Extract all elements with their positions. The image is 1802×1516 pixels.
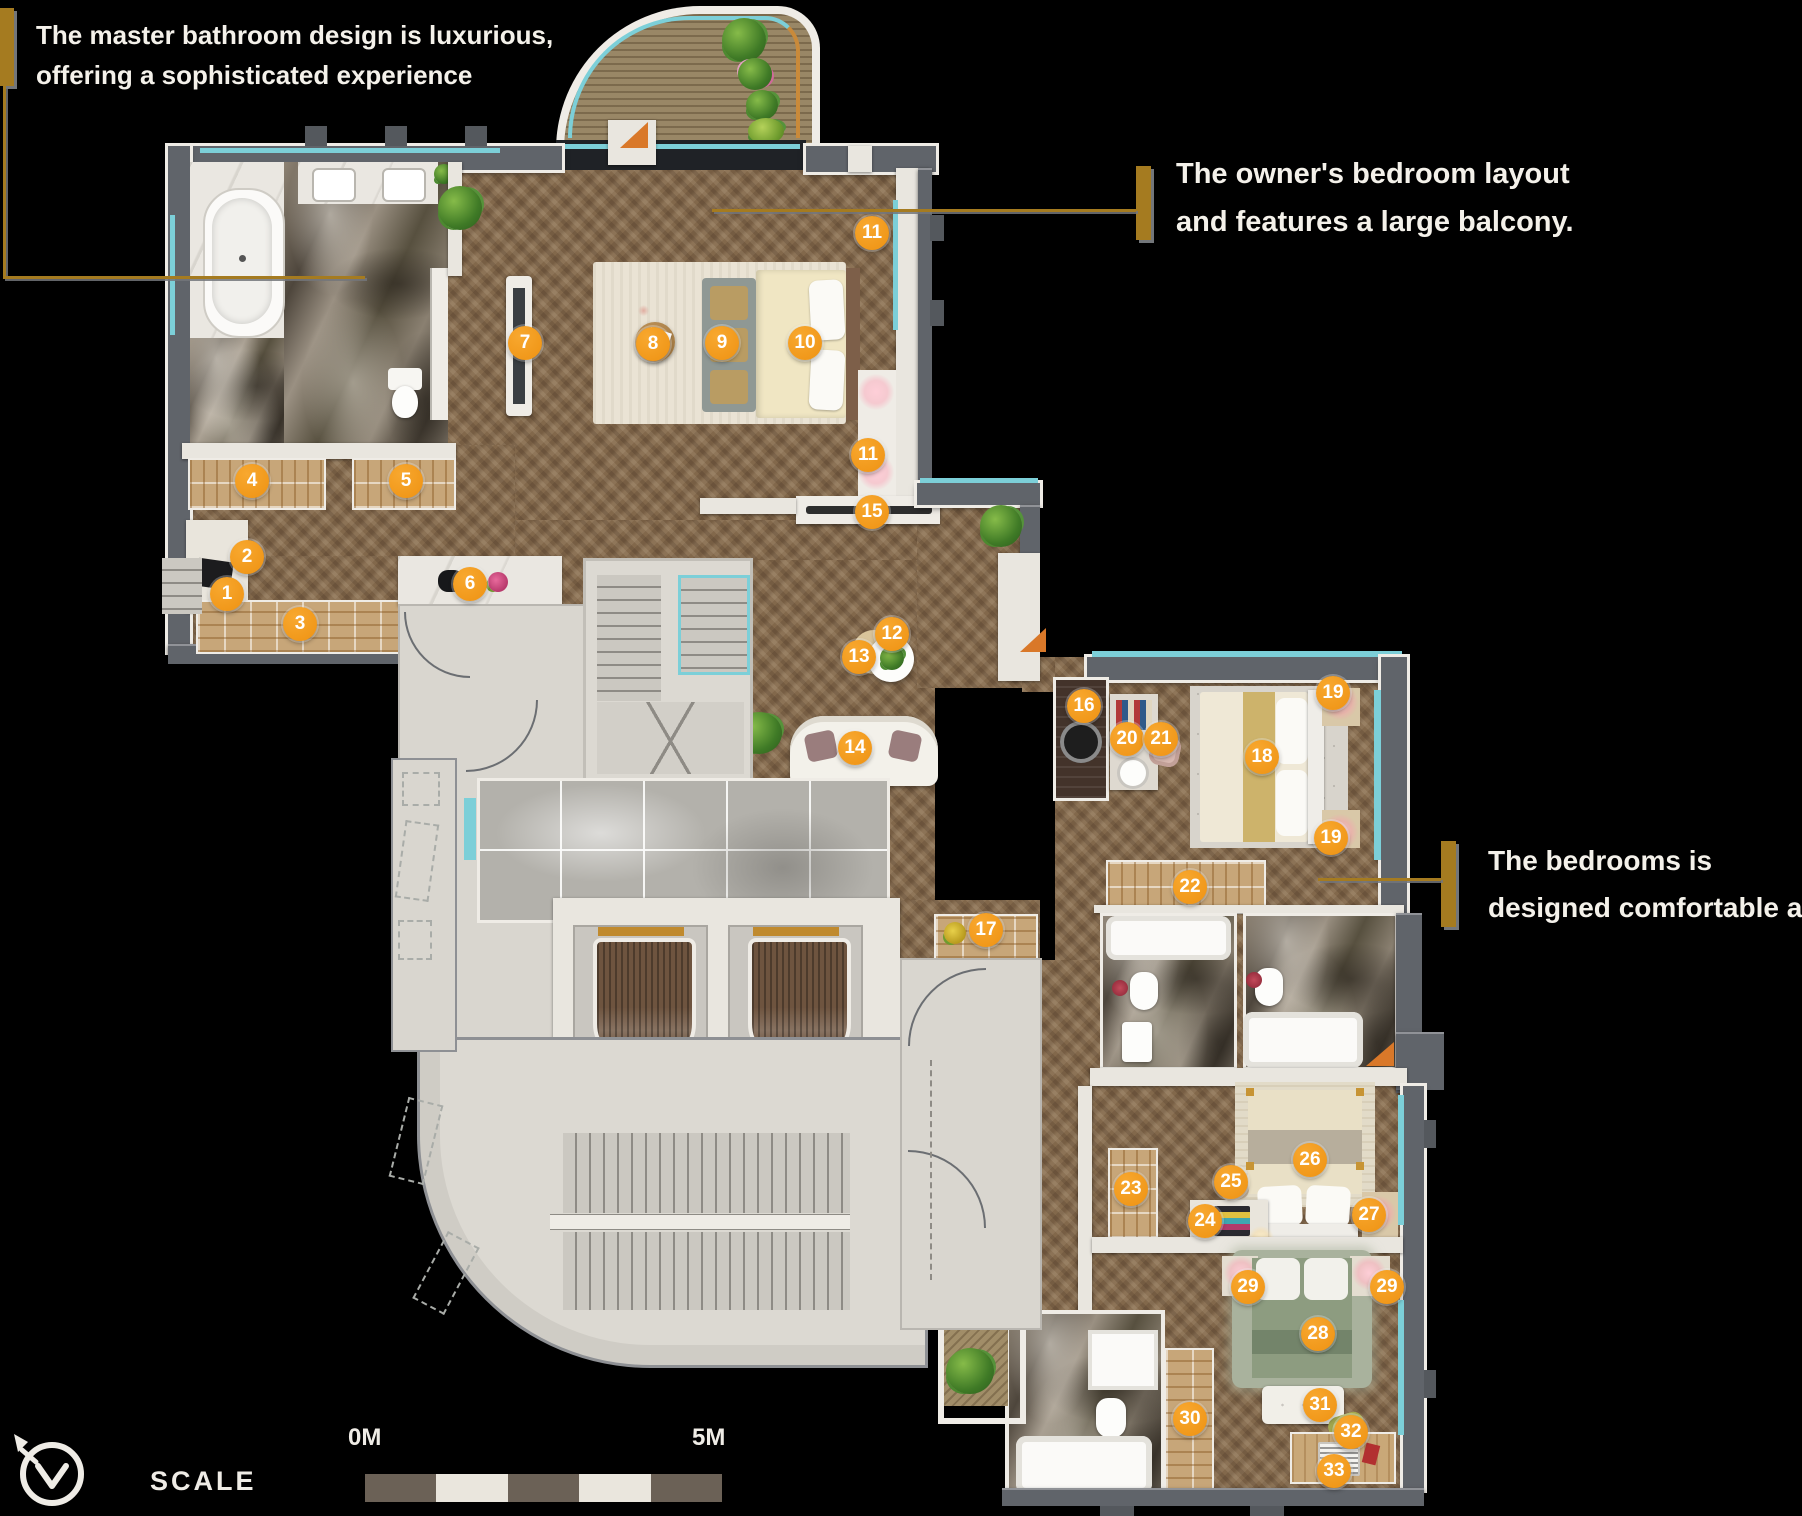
plan-marker-8: 8 [636,327,670,361]
plan-marker-32: 32 [1334,1415,1368,1449]
plan-marker-27: 27 [1352,1198,1386,1232]
plan-marker-22: 22 [1173,870,1207,904]
scale-label: SCALE [150,1466,257,1497]
annotation-top-right-line1: The owner's bedroom layout [1176,158,1570,191]
plan-marker-19: 19 [1314,821,1348,855]
annotation-top-right-line2: and features a large balcony. [1176,206,1574,239]
scale-segment-dark [651,1474,722,1502]
plan-marker-33: 33 [1317,1454,1351,1488]
plan-marker-2: 2 [230,540,264,574]
plan-marker-9: 9 [705,326,739,360]
plan-marker-30: 30 [1173,1402,1207,1436]
callout-line-top-left-v [3,86,6,277]
plan-marker-28: 28 [1301,1317,1335,1351]
plan-marker-14: 14 [838,731,872,765]
scale-end-label: 5M [692,1424,725,1452]
plan-marker-13: 13 [842,640,876,674]
scale-zero-label: 0M [348,1424,381,1452]
plan-marker-29: 29 [1231,1270,1265,1304]
north-arrow-icon [8,1408,92,1512]
plan-marker-25: 25 [1214,1165,1248,1199]
plan-marker-24: 24 [1188,1204,1222,1238]
plan-marker-19: 19 [1316,676,1350,710]
plan-marker-16: 16 [1067,689,1101,723]
plan-marker-5: 5 [389,464,423,498]
floor-plan-sheet: The master bathroom design is luxurious,… [0,0,1802,1516]
scale-segment-dark [365,1474,436,1502]
plan-marker-21: 21 [1144,722,1178,756]
annotation-top-left-line1: The master bathroom design is luxurious, [36,20,553,51]
annotation-top-left-line2: offering a sophisticated experience [36,60,472,91]
plan-marker-18: 18 [1245,740,1279,774]
scale-segment-dark [508,1474,579,1502]
plan-marker-29: 29 [1370,1270,1404,1304]
plan-marker-17: 17 [969,913,1003,947]
annotation-right-line2: designed comfortable and. [1488,892,1802,924]
plan-marker-12: 12 [875,617,909,651]
plan-marker-11: 11 [855,216,889,250]
plan-marker-3: 3 [283,607,317,641]
plan-marker-1: 1 [210,577,244,611]
callout-line-top-right [712,209,1136,212]
plan-marker-4: 4 [235,464,269,498]
plan-marker-10: 10 [788,326,822,360]
scale-segment-light [436,1474,507,1502]
scale-segment-light [579,1474,650,1502]
annotation-right-line1: The bedrooms is [1488,845,1712,877]
plan-marker-31: 31 [1303,1388,1337,1422]
scale-bar [365,1474,722,1502]
callout-line-top-left-h [3,276,365,279]
plan-marker-11: 11 [851,438,885,472]
plan-marker-15: 15 [855,495,889,529]
plan-marker-6: 6 [453,567,487,601]
plan-marker-20: 20 [1110,722,1144,756]
plan-marker-23: 23 [1114,1172,1148,1206]
plan-marker-7: 7 [508,326,542,360]
callout-line-right [1318,878,1441,881]
plan-marker-26: 26 [1293,1143,1327,1177]
